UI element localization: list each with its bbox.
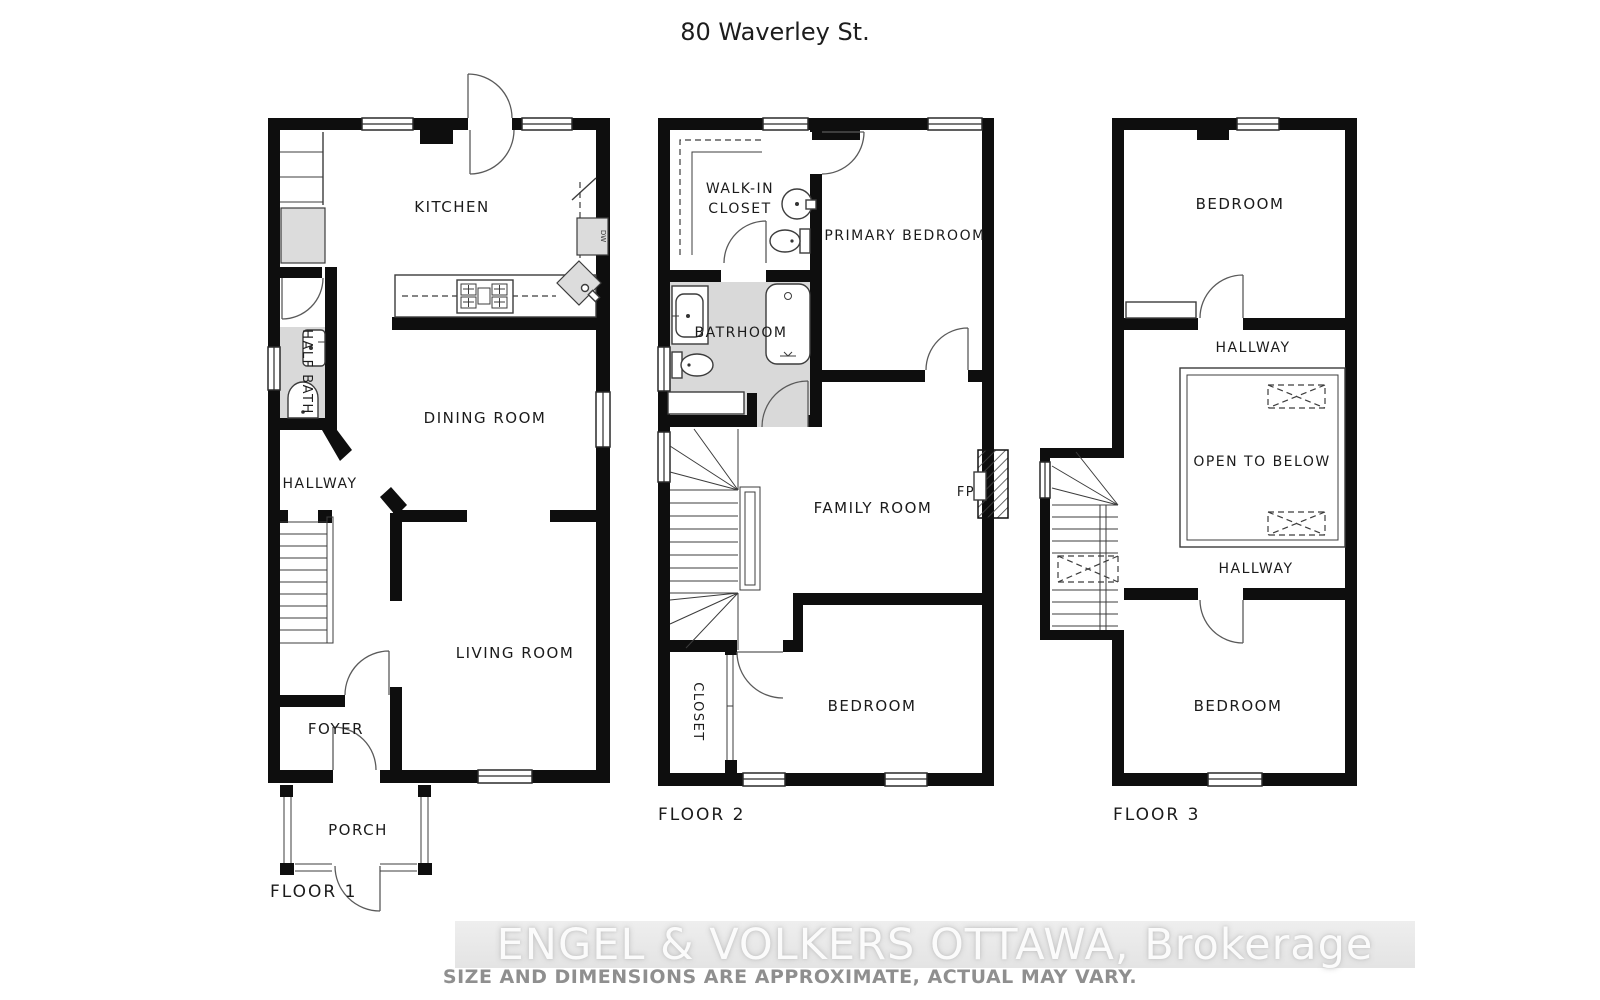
fridge bbox=[281, 208, 325, 263]
floorplan-canvas: DW bbox=[0, 0, 1600, 1000]
disclaimer-text: SIZE AND DIMENSIONS ARE APPROXIMATE, ACT… bbox=[400, 966, 1180, 988]
floor1-plan: DW bbox=[268, 74, 610, 911]
window bbox=[1208, 773, 1262, 786]
floor2-stairs bbox=[670, 429, 760, 650]
room-label-bathroom: BATRHOOM bbox=[694, 325, 787, 341]
toilet bbox=[672, 352, 713, 378]
window bbox=[362, 118, 413, 130]
floorplan-page: 80 Waverley St. bbox=[0, 0, 1600, 1000]
window bbox=[268, 347, 280, 390]
stair-railing bbox=[740, 487, 760, 590]
room-label-kitchen: KITCHEN bbox=[414, 198, 490, 216]
primary-bedroom-hall-door bbox=[926, 328, 968, 370]
closet-sliding-door bbox=[727, 655, 733, 760]
shower-base bbox=[668, 392, 744, 414]
floor3-plan: BEDROOM HALLWAY OPEN TO BELOW HALLWAY BE… bbox=[1040, 118, 1357, 825]
floor1-stairs bbox=[280, 517, 333, 643]
toilet bbox=[770, 229, 810, 253]
room-label-living-room: LIVING ROOM bbox=[456, 644, 575, 662]
window bbox=[658, 432, 670, 482]
room-label-bedroom-top: BEDROOM bbox=[1196, 195, 1285, 213]
counter-corner bbox=[572, 178, 596, 200]
floor1-caption: FLOOR 1 bbox=[270, 882, 357, 902]
room-label-dining-room: DINING ROOM bbox=[424, 409, 547, 427]
cooktop bbox=[457, 280, 513, 313]
walk-in-closet-shelving bbox=[680, 140, 762, 255]
bedroom-bottom-door bbox=[1200, 600, 1243, 643]
room-label-walk-in-closet-1: WALK-IN bbox=[706, 181, 774, 197]
room-label-hallway-bottom: HALLWAY bbox=[1218, 561, 1293, 577]
skylight bbox=[1268, 512, 1325, 535]
window bbox=[522, 118, 572, 130]
room-label-primary-bedroom: PRIMARY BEDROOM bbox=[824, 228, 985, 244]
half-bath-door bbox=[282, 278, 323, 319]
floor3-caption: FLOOR 3 bbox=[1113, 805, 1200, 825]
dishwasher: DW bbox=[577, 218, 608, 255]
kitchen-back-door-lower bbox=[470, 130, 514, 174]
skylight bbox=[1268, 385, 1325, 408]
window bbox=[763, 118, 808, 130]
room-label-walk-in-closet-2: CLOSET bbox=[708, 201, 771, 217]
fireplace-label: FP bbox=[957, 485, 975, 500]
skylight bbox=[1058, 556, 1118, 582]
window bbox=[885, 773, 927, 786]
upper-bath-fixtures bbox=[770, 189, 816, 253]
page-title: 80 Waverley St. bbox=[575, 18, 975, 46]
floor3-walls bbox=[1040, 118, 1357, 786]
bathtub bbox=[766, 284, 810, 364]
hallway-foyer-door bbox=[345, 651, 389, 695]
window bbox=[743, 773, 785, 786]
stair-railing bbox=[327, 517, 333, 643]
floor3-stairs bbox=[1052, 452, 1118, 630]
wardrobe bbox=[1126, 302, 1196, 318]
kitchen-back-door-upper bbox=[468, 74, 512, 118]
room-label-open-to-below: OPEN TO BELOW bbox=[1193, 454, 1330, 470]
walk-in-closet-door bbox=[724, 221, 766, 263]
floor2-walls bbox=[658, 118, 994, 786]
window bbox=[596, 392, 610, 447]
room-label-hallway-top: HALLWAY bbox=[1215, 340, 1290, 356]
room-label-closet: CLOSET bbox=[690, 682, 705, 742]
window bbox=[928, 118, 982, 130]
room-label-hallway: HALLWAY bbox=[282, 476, 357, 492]
fireplace bbox=[974, 450, 1008, 518]
window bbox=[658, 347, 670, 391]
window bbox=[1237, 118, 1279, 130]
window bbox=[1040, 462, 1050, 498]
floor2-plan: WALK-IN CLOSET PRIMARY BEDROOM BATRHOOM … bbox=[658, 118, 1008, 825]
room-label-bedroom-bottom: BEDROOM bbox=[1194, 697, 1283, 715]
floor2-caption: FLOOR 2 bbox=[658, 805, 745, 825]
window bbox=[478, 770, 532, 783]
room-label-porch: PORCH bbox=[328, 821, 388, 839]
floor2-doors bbox=[724, 132, 968, 760]
room-label-bedroom: BEDROOM bbox=[828, 697, 917, 715]
brokerage-watermark: ENGEL & VOLKERS OTTAWA, Brokerage bbox=[455, 921, 1415, 968]
room-label-family-room: FAMILY ROOM bbox=[814, 499, 933, 517]
room-label-foyer: FOYER bbox=[308, 720, 364, 738]
chimney-bump bbox=[420, 130, 453, 144]
chimney-bump bbox=[1197, 130, 1229, 140]
dishwasher-label: DW bbox=[599, 230, 607, 242]
bedroom-top-door bbox=[1200, 275, 1243, 318]
room-label-half-bath: HALF BATH bbox=[299, 329, 314, 415]
bedroom-door bbox=[737, 652, 783, 698]
